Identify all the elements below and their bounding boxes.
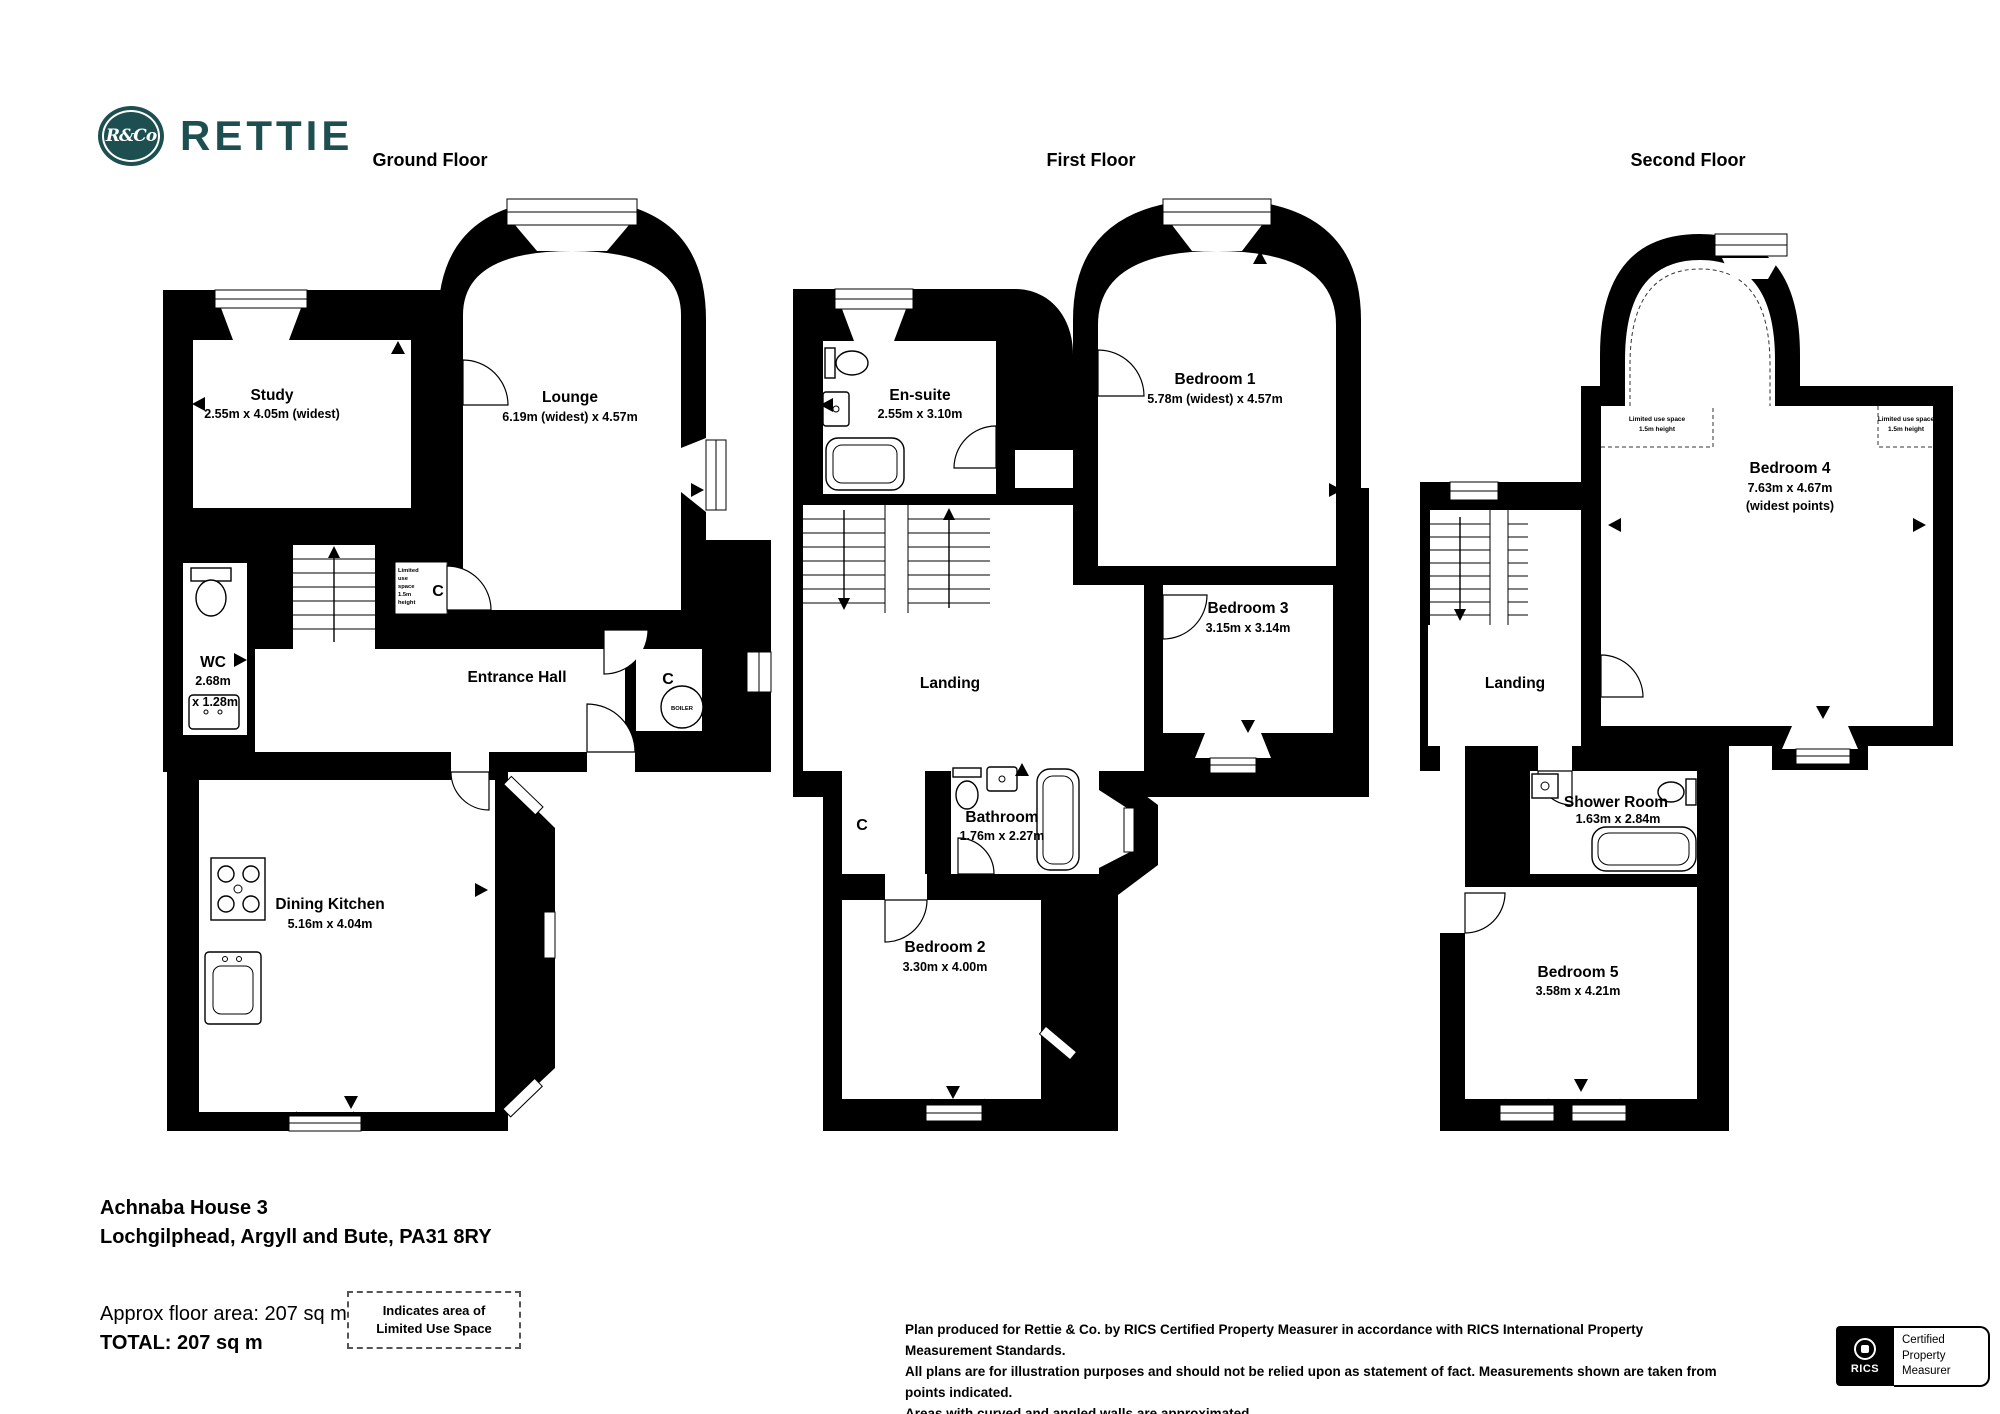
room-name: En-suite (889, 387, 951, 404)
room-name: Entrance Hall (467, 669, 566, 686)
disclaimer-line1: Plan produced for Rettie & Co. by RICS C… (905, 1320, 1725, 1362)
room-name: Landing (920, 675, 980, 692)
cupboard-label: C (432, 583, 444, 600)
total-area: TOTAL: 207 sq m (100, 1329, 347, 1358)
study-floor (193, 340, 411, 508)
ground-floor-title: Ground Floor (300, 150, 560, 171)
room-name: Bedroom 3 (1208, 600, 1289, 617)
landing-floor (803, 613, 1144, 771)
sink-icon (823, 392, 849, 426)
disclaimer: Plan produced for Rettie & Co. by RICS C… (905, 1320, 1725, 1414)
floor-area-summary: Approx floor area: 207 sq m TOTAL: 207 s… (100, 1300, 347, 1358)
room-dims: x 1.28m (192, 695, 238, 709)
cupboard: C (842, 765, 925, 874)
rics-certification: RICS Certified Property Measurer (1836, 1326, 1990, 1387)
limited-use-text: Limited use space (1629, 416, 1686, 423)
room-dims: 7.63m x 4.67m (1748, 481, 1833, 495)
second-floor-plan: Limited use space 1.5m height Limited us… (1420, 225, 1980, 1145)
hob-icon (211, 858, 265, 920)
room-name: Bedroom 4 (1750, 460, 1831, 477)
kitchen-floor (199, 780, 495, 1112)
limited-use-text: space (398, 584, 415, 590)
disclaimer-line2: All plans are for illustration purposes … (905, 1362, 1725, 1404)
limited-use-text: height (398, 600, 415, 606)
room-name: Study (250, 387, 293, 404)
address-line1: Achnaba House 3 (100, 1194, 492, 1223)
ground-floor-plan: Study 2.55m x 4.05m (widest) Lounge 6.19… (155, 190, 795, 1150)
room-name: Dining Kitchen (275, 896, 384, 913)
rettie-monogram-icon: R&Co (98, 106, 164, 166)
bath-icon (1592, 827, 1696, 871)
room-bedroom4: Limited use space 1.5m height Limited us… (1601, 234, 1935, 764)
limited-use-text: 1.5m (398, 592, 411, 598)
legend-line2: Limited Use Space (376, 1320, 492, 1338)
sink-icon (987, 767, 1017, 791)
hall-floor (255, 649, 625, 752)
limited-use-text: 1.5m height (1639, 426, 1676, 433)
room-name: Landing (1485, 675, 1545, 692)
rics-name: RICS (1851, 1363, 1879, 1375)
cert-line: Property (1902, 1349, 1980, 1365)
rics-lion-icon (1854, 1338, 1876, 1360)
cert-line: Measurer (1902, 1364, 1980, 1380)
room-dims-note: (widest points) (1746, 499, 1834, 513)
window (544, 912, 555, 958)
limited-use-text: Limited (398, 568, 419, 574)
room-name: WC (200, 654, 226, 671)
room-name: Shower Room (1564, 794, 1668, 811)
bath-icon (1037, 769, 1079, 870)
room-dims: 2.68m (195, 674, 230, 688)
room-name: Bedroom 5 (1538, 964, 1619, 981)
rics-cert-label: Certified Property Measurer (1894, 1326, 1990, 1387)
window (1450, 482, 1498, 500)
cupboard-label: C (856, 817, 868, 834)
bed4-floor (1601, 406, 1933, 726)
legend-line1: Indicates area of (383, 1302, 486, 1320)
room-dims: 6.19m (widest) x 4.57m (502, 410, 637, 424)
room-name: Bedroom 1 (1175, 371, 1256, 388)
room-name: Bedroom 2 (905, 939, 986, 956)
room-dims: 3.58m x 4.21m (1536, 984, 1621, 998)
room-name: Bathroom (965, 809, 1038, 826)
first-floor-title: First Floor (961, 150, 1221, 171)
room-dims: 5.16m x 4.04m (288, 917, 373, 931)
limited-use-text: use (398, 576, 409, 582)
rettie-monogram: R&Co (106, 126, 156, 146)
wall (1015, 289, 1073, 450)
bed1-floor (1098, 251, 1336, 566)
room-dims: 2.55m x 3.10m (878, 407, 963, 421)
first-floor-plan: En-suite 2.55m x 3.10m Bedroom 1 5.78m (… (790, 190, 1390, 1140)
lounge-floor (463, 251, 681, 610)
room-dims: 1.76m x 2.27m (960, 829, 1045, 843)
floorplan-page: R&Co RETTIE Ground Floor First Floor Sec… (0, 0, 2000, 1414)
room-name: Lounge (542, 389, 598, 406)
room-dims: 3.15m x 3.14m (1206, 621, 1291, 635)
room-dims: 1.63m x 2.84m (1576, 812, 1661, 826)
limited-use-legend: Indicates area of Limited Use Space (347, 1291, 521, 1349)
boiler-label: BOILER (671, 706, 694, 712)
limited-use-text: 1.5m height (1888, 426, 1925, 433)
limited-use-text: Limited use space (1878, 416, 1935, 423)
property-address: Achnaba House 3 Lochgilphead, Argyll and… (100, 1194, 492, 1252)
room-dims: 3.30m x 4.00m (903, 960, 988, 974)
cupboard-label: C (662, 671, 674, 688)
cert-line: Certified (1902, 1333, 1980, 1349)
bed2-floor (842, 900, 1041, 1099)
window (747, 652, 771, 692)
room-dims: 5.78m (widest) x 4.57m (1147, 392, 1282, 406)
room-entrance-hall: Entrance Hall (255, 630, 648, 772)
rics-logo: RICS (1836, 1326, 1894, 1386)
approx-area: Approx floor area: 207 sq m (100, 1300, 347, 1329)
stairs-icon: UP (293, 545, 375, 666)
room-bedroom5: Bedroom 5 3.58m x 4.21m (1440, 887, 1697, 1121)
second-floor-title: Second Floor (1558, 150, 1818, 171)
toilet-icon (953, 768, 981, 809)
bath-icon (826, 438, 904, 490)
address-line2: Lochgilphead, Argyll and Bute, PA31 8RY (100, 1223, 492, 1252)
room-dims: 2.55m x 4.05m (widest) (204, 407, 339, 421)
disclaimer-line3: Areas with curved and angled walls are a… (905, 1404, 1725, 1414)
shower-icon (1532, 774, 1558, 798)
kitchen-sink-icon (205, 952, 261, 1024)
